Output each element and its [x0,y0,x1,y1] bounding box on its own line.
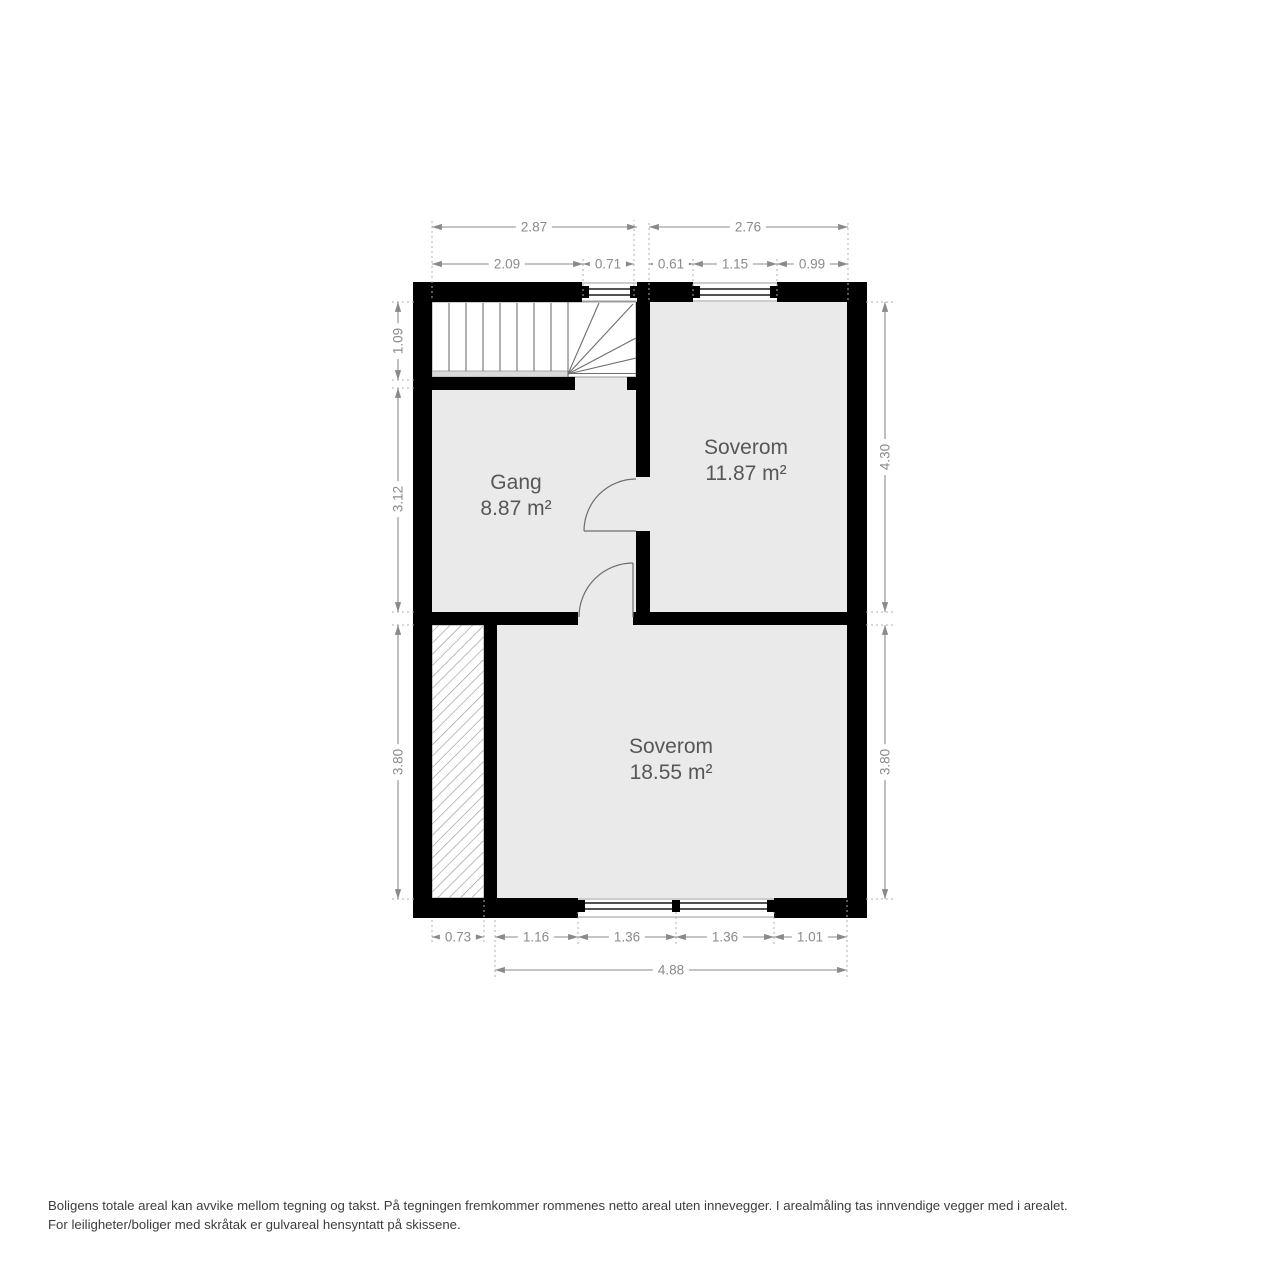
dim-right-1: 4.30 [878,439,893,475]
dim-bottom-seg-2: 1.16 [518,930,554,945]
window-bottom-right [672,899,774,917]
interior-wall-vertical [636,531,650,612]
dim-top-seg-4: 1.15 [717,257,753,272]
dim-bottom-seg-1: 0.73 [440,930,476,945]
room-name: Gang [480,470,551,496]
hatch-side-wall [484,612,497,898]
outer-wall-top [777,282,867,302]
dim-bottom-seg-5: 1.01 [792,930,828,945]
room-name: Soverom [704,435,788,461]
floor-plan-page: Gang 8.87 m² Soverom 11.87 m² Soverom 18… [0,0,1280,1280]
dim-left-1: 1.09 [391,323,406,359]
room-area: 11.87 m² [704,461,788,487]
room-label-gang: Gang 8.87 m² [480,470,551,522]
disclaimer-line-1: Boligens totale areal kan avvike mellom … [48,1196,1068,1215]
stair-landing-edge [432,371,568,377]
disclaimer: Boligens totale areal kan avvike mellom … [48,1196,1068,1234]
interior-wall-horizontal [633,612,847,625]
dim-top-seg-2: 0.71 [590,257,626,272]
dim-right-2: 3.80 [878,744,893,780]
disclaimer-line-2: For leiligheter/boliger med skråtak er g… [48,1215,1068,1234]
dim-top-seg-1: 2.09 [489,257,525,272]
window-bottom-left [578,899,676,917]
window-top-stair [582,283,637,301]
dim-top-overall-left: 2.87 [516,220,552,235]
outer-wall-top [413,282,582,302]
room-area: 8.87 m² [480,496,551,522]
dim-bottom-seg-4: 1.36 [707,930,743,945]
room-area: 18.55 m² [629,760,713,786]
dim-top-overall-right: 2.76 [730,220,766,235]
dim-top-seg-3: 0.61 [653,257,689,272]
dim-bottom-seg-3: 1.36 [609,930,645,945]
room-name: Soverom [629,734,713,760]
room-label-soverom-2: Soverom 18.55 m² [629,734,713,786]
dim-bottom-overall: 4.88 [653,963,689,978]
outer-wall-bottom [774,898,867,918]
hatched-wall-area [432,625,484,898]
dim-left-3: 3.80 [391,744,406,780]
outer-wall-right [847,282,867,918]
stair-wall-stub [627,377,650,390]
stair-wall [413,377,575,390]
outer-wall-bottom [413,898,578,918]
floor-plan-drawing [0,0,1280,1280]
window-top-bedroom [693,283,777,301]
room-label-soverom-1: Soverom 11.87 m² [704,435,788,487]
outer-wall-top [637,282,693,302]
dim-top-seg-5: 0.99 [794,257,830,272]
dim-left-2: 3.12 [391,481,406,517]
